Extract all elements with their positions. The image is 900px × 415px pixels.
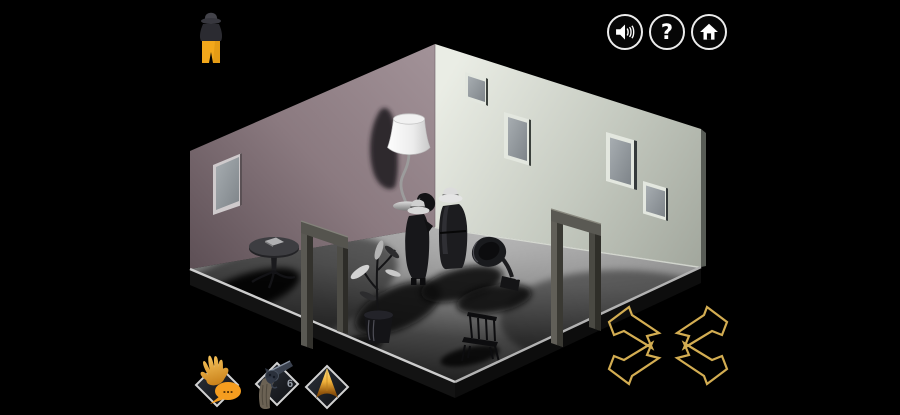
compass-button[interactable] (296, 354, 358, 415)
speaker-icon (614, 21, 636, 43)
nav-arrow-up-left[interactable] (609, 307, 659, 348)
window-right-3 (606, 132, 637, 190)
nav-arrows (602, 300, 734, 390)
window-right-2 (504, 112, 531, 166)
talk-button[interactable]: ... (186, 352, 248, 414)
question-mark-icon: ? (661, 22, 673, 43)
nav-arrow-up-right[interactable] (677, 307, 727, 348)
ammo-count: 6 (287, 378, 293, 390)
help-button[interactable]: ? (649, 14, 685, 50)
home-button[interactable] (691, 14, 727, 50)
right-wall-edge (701, 129, 706, 267)
player-indicator[interactable] (195, 6, 227, 66)
sound-button[interactable] (607, 14, 643, 50)
detective-figure-icon (200, 13, 222, 63)
home-icon (698, 21, 720, 43)
nav-arrow-down-right[interactable] (677, 343, 727, 384)
bubble-dots: ... (223, 381, 234, 396)
nav-arrow-down-left[interactable] (609, 343, 659, 384)
game-stage: ? ... (0, 0, 900, 415)
room-scene (0, 0, 900, 415)
topbar: ? (607, 14, 727, 50)
